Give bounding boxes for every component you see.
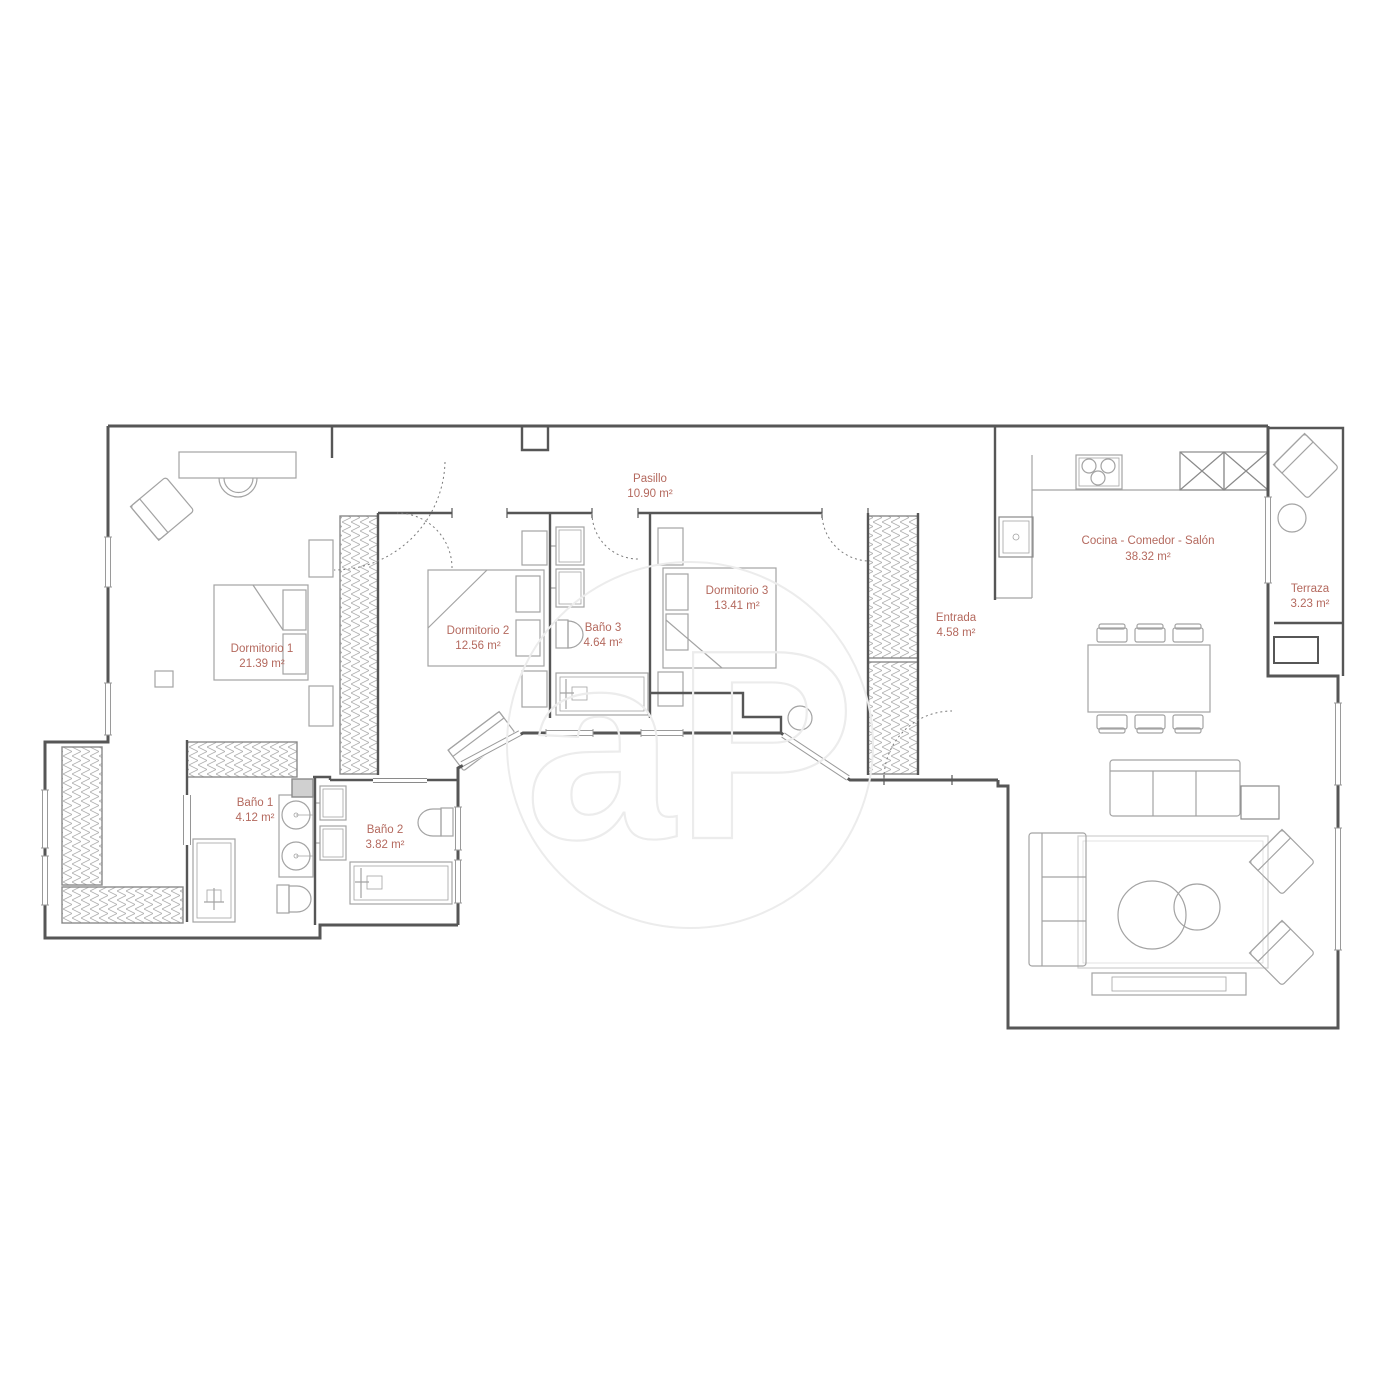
- living-room-furniture: [1029, 760, 1315, 995]
- sink: [320, 826, 346, 860]
- watermark: aP: [507, 562, 873, 928]
- armchair: [1273, 433, 1338, 498]
- room-name: Baño 2: [367, 824, 403, 836]
- side-table: [1241, 786, 1279, 819]
- room-label-pasillo: Pasillo 10.90 m²: [627, 473, 673, 500]
- pillow: [283, 590, 306, 630]
- room-label-terraza: Terraza 3.23 m²: [1291, 583, 1330, 610]
- floor-plan-page: Dormitorio 1 21.39 m² Dormitorio 2 12.56…: [0, 0, 1400, 1400]
- room-label-bano-1: Baño 1 4.12 m²: [236, 797, 275, 824]
- nightstand: [658, 528, 683, 565]
- door-arc: [592, 513, 638, 559]
- toilet-tank: [277, 885, 289, 913]
- tv-console: [1092, 973, 1246, 995]
- duct: [292, 779, 313, 797]
- door-arc: [397, 513, 452, 568]
- room-name: Pasillo: [633, 473, 667, 485]
- nightstand: [309, 540, 333, 577]
- kitchen-furniture: [995, 452, 1268, 733]
- burner: [1082, 459, 1096, 473]
- toilet-tank: [441, 808, 453, 836]
- terrace-furniture: [1273, 433, 1338, 532]
- room-area: 3.23 m²: [1291, 598, 1330, 610]
- terrace-closet: [1274, 637, 1318, 663]
- round-table: [1278, 504, 1306, 532]
- room-area: 10.90 m²: [627, 488, 673, 500]
- counter: [995, 455, 1268, 598]
- room-label-dormitorio-1: Dormitorio 1 21.39 m²: [231, 643, 294, 670]
- floor-plan-svg: Dormitorio 1 21.39 m² Dormitorio 2 12.56…: [0, 0, 1400, 1400]
- side-table: [155, 671, 173, 687]
- coffee-table: [1174, 884, 1220, 930]
- wardrobe: [62, 887, 183, 923]
- armchair: [1249, 829, 1314, 894]
- room-label-dormitorio-2: Dormitorio 2 12.56 m²: [447, 625, 510, 652]
- room-name: Entrada: [936, 612, 977, 624]
- wardrobe: [868, 662, 918, 774]
- sink: [320, 786, 346, 820]
- wardrobe: [187, 742, 297, 777]
- room-area: 3.82 m²: [366, 839, 405, 851]
- armchair: [1249, 920, 1314, 985]
- dining-table: [1088, 645, 1210, 712]
- hob: [1076, 455, 1122, 489]
- sofa: [1110, 760, 1240, 816]
- dining-chairs: [1097, 624, 1203, 733]
- watermark-logo: aP: [525, 595, 855, 896]
- radiator-arc: [219, 478, 257, 497]
- bed-fold: [253, 585, 283, 630]
- room-name: Baño 1: [237, 797, 273, 809]
- room-name: Dormitorio 2: [447, 625, 510, 637]
- armchair: [130, 477, 194, 540]
- burner: [1101, 459, 1115, 473]
- room-area: 21.39 m²: [239, 658, 285, 670]
- room-label-cocina-comedor-salon: Cocina - Comedor - Salón 38.32 m²: [1082, 535, 1215, 563]
- room-label-bano-2: Baño 2 3.82 m²: [366, 824, 405, 851]
- door-arc: [822, 513, 870, 561]
- bathtub: [350, 862, 452, 904]
- room-name: Terraza: [1291, 583, 1330, 595]
- sink: [556, 527, 584, 565]
- nightstand: [309, 686, 333, 726]
- room-area: 4.12 m²: [236, 812, 275, 824]
- nightstand: [522, 531, 547, 565]
- room-area: 12.56 m²: [455, 640, 501, 652]
- room-area: 38.32 m²: [1125, 551, 1171, 563]
- dormitorio-1-furniture: [130, 452, 333, 726]
- terrace-walls: [1268, 428, 1343, 676]
- wardrobe: [62, 747, 102, 885]
- burner: [1091, 471, 1105, 485]
- toilet-bowl: [418, 809, 441, 836]
- sideboard: [179, 452, 296, 478]
- room-name: Dormitorio 1: [231, 643, 294, 655]
- room-area: 4.58 m²: [937, 627, 976, 639]
- toilet-bowl: [289, 886, 311, 912]
- bed-fold: [428, 570, 487, 628]
- room-name: Cocina - Comedor - Salón: [1082, 535, 1215, 547]
- wardrobe: [868, 516, 918, 658]
- rug: [1078, 836, 1268, 968]
- wardrobe: [340, 516, 378, 774]
- kitchen-sink: [999, 517, 1033, 557]
- room-label-entrada: Entrada 4.58 m²: [936, 612, 977, 639]
